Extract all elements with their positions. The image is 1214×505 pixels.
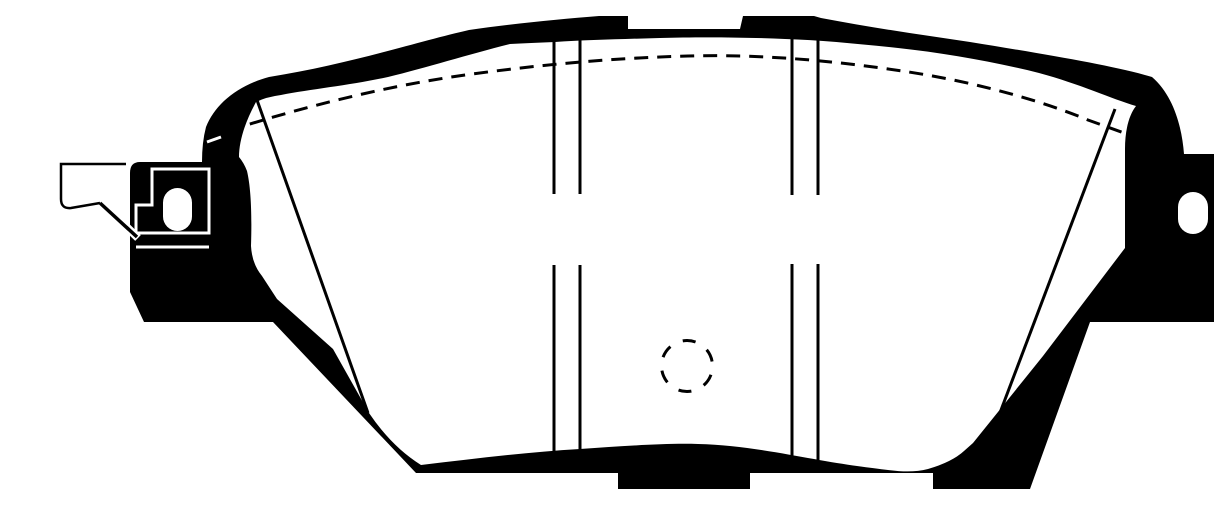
brake-pad-technical-drawing: Black and white technical line drawing o… — [40, 16, 1214, 489]
drawing-canvas: Black and white technical line drawing o… — [40, 16, 1214, 489]
left-lug-hole — [163, 188, 192, 231]
right-lug-hole — [1178, 192, 1208, 234]
